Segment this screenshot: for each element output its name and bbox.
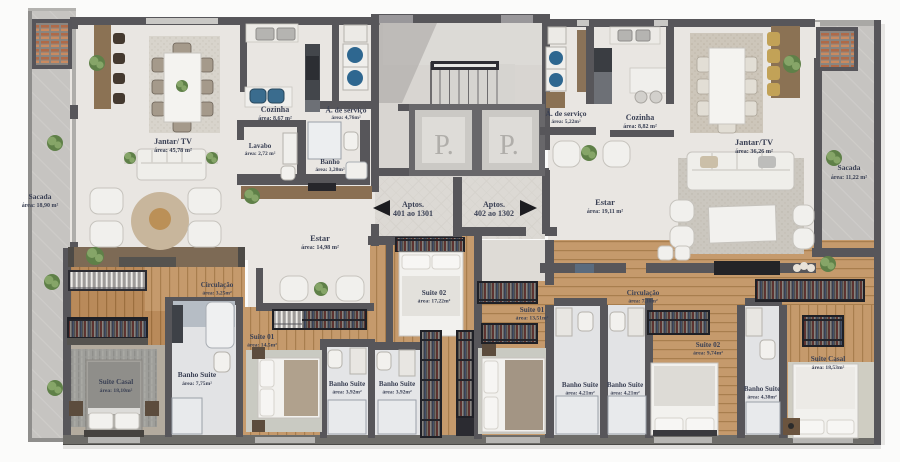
svg-text:área: 2,72 m²: área: 2,72 m² bbox=[245, 151, 276, 157]
svg-text:Estar: Estar bbox=[310, 233, 330, 243]
svg-text:Lavabo: Lavabo bbox=[249, 142, 272, 150]
svg-text:área: 18,90 m²: área: 18,90 m² bbox=[22, 203, 59, 209]
svg-text:Banho Suite: Banho Suite bbox=[607, 381, 643, 389]
svg-text:Jantar/TV: Jantar/TV bbox=[735, 137, 774, 147]
svg-text:Banho Suite: Banho Suite bbox=[379, 380, 415, 388]
svg-text:área: 8,82 m²: área: 8,82 m² bbox=[623, 124, 657, 130]
svg-text:área: 4,21m²: área: 4,21m² bbox=[610, 391, 640, 397]
svg-text:Suite 02: Suite 02 bbox=[422, 289, 447, 297]
svg-text:área: 7,10m²: área: 7,10m² bbox=[628, 299, 658, 305]
svg-text:Aptos.: Aptos. bbox=[483, 200, 505, 209]
svg-text:Cozinha: Cozinha bbox=[261, 105, 289, 114]
svg-text:área: 9,74m²: área: 9,74m² bbox=[693, 351, 723, 357]
svg-text:área: 4,76m²: área: 4,76m² bbox=[331, 115, 361, 121]
svg-text:Banho Suite: Banho Suite bbox=[329, 380, 365, 388]
svg-text:P.: P. bbox=[499, 130, 518, 161]
svg-text:área: 11,22 m²: área: 11,22 m² bbox=[831, 175, 867, 181]
svg-text:área: 19,11 m²: área: 19,11 m² bbox=[587, 209, 623, 215]
svg-text:área: 5,22m²: área: 5,22m² bbox=[551, 119, 581, 125]
svg-text:área: 14,5m²: área: 14,5m² bbox=[247, 343, 277, 349]
svg-text:Á. de serviço: Á. de serviço bbox=[545, 108, 586, 118]
svg-text:área: 17,22m²: área: 17,22m² bbox=[418, 299, 451, 305]
svg-text:Suite 02: Suite 02 bbox=[696, 341, 721, 349]
svg-text:Banho Suite: Banho Suite bbox=[744, 385, 780, 393]
svg-text:Suite Casal: Suite Casal bbox=[811, 355, 846, 363]
svg-text:área: 3,92m²: área: 3,92m² bbox=[332, 390, 362, 396]
svg-text:área: 45,78 m²: área: 45,78 m² bbox=[154, 147, 192, 154]
svg-text:área: 36,26 m²: área: 36,26 m² bbox=[735, 148, 773, 155]
svg-text:área: 14,98 m²: área: 14,98 m² bbox=[301, 244, 339, 251]
svg-text:área: 18,10m²: área: 18,10m² bbox=[100, 388, 133, 394]
svg-text:área: 3,25m²: área: 3,25m² bbox=[202, 291, 232, 297]
svg-text:área: 8,67 m²: área: 8,67 m² bbox=[258, 116, 292, 122]
svg-text:área: 4,21m²: área: 4,21m² bbox=[565, 391, 595, 397]
svg-text:Banho: Banho bbox=[320, 158, 340, 166]
svg-text:área: 3,20m²: área: 3,20m² bbox=[315, 167, 345, 173]
svg-text:Banho Suite: Banho Suite bbox=[562, 381, 598, 389]
svg-text:Sacada: Sacada bbox=[838, 163, 861, 172]
svg-text:área: 4,38m²: área: 4,38m² bbox=[747, 395, 777, 401]
svg-text:Circulação: Circulação bbox=[627, 289, 660, 297]
svg-text:Estar: Estar bbox=[595, 197, 615, 207]
svg-text:Banho Suite: Banho Suite bbox=[178, 370, 217, 379]
svg-text:Sacada: Sacada bbox=[29, 192, 52, 201]
svg-text:Suite 01: Suite 01 bbox=[520, 306, 545, 314]
svg-text:Circulação: Circulação bbox=[201, 281, 234, 289]
svg-text:área: 7,75m²: área: 7,75m² bbox=[182, 381, 212, 387]
svg-text:402 ao 1302: 402 ao 1302 bbox=[474, 209, 514, 218]
svg-text:Suite Casal: Suite Casal bbox=[99, 378, 134, 386]
svg-text:Jantar/ TV: Jantar/ TV bbox=[154, 137, 192, 146]
svg-text:área: 18,53m²: área: 18,53m² bbox=[812, 365, 845, 371]
svg-text:P.: P. bbox=[434, 130, 453, 161]
svg-text:Suite 01: Suite 01 bbox=[250, 333, 275, 341]
svg-text:401 ao 1301: 401 ao 1301 bbox=[393, 209, 433, 218]
svg-text:Aptos.: Aptos. bbox=[402, 200, 424, 209]
svg-text:Á. de serviço: Á. de serviço bbox=[325, 105, 366, 115]
svg-text:Cozinha: Cozinha bbox=[626, 113, 654, 122]
svg-text:área: 13,51m²: área: 13,51m² bbox=[516, 316, 549, 322]
svg-text:área: 3,92m²: área: 3,92m² bbox=[382, 390, 412, 396]
